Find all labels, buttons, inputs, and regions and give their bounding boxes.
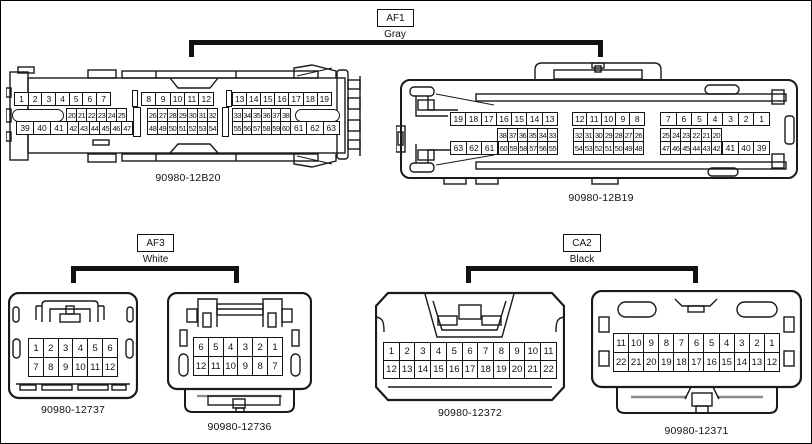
pin-6: 6 <box>462 342 479 361</box>
connector-code-af3: AF3 <box>137 234 174 252</box>
pin-63: 63 <box>450 141 467 155</box>
pin-21: 21 <box>628 352 644 372</box>
pin-row: 333435363738 <box>232 108 291 122</box>
pin-61: 61 <box>290 121 307 135</box>
pin-62: 62 <box>466 141 483 155</box>
pin-6: 6 <box>82 92 97 106</box>
pin-row: 1110987654321 <box>613 333 780 353</box>
pin-row: 252423222120 <box>660 128 722 142</box>
connector-code-af3-text: AF3 <box>146 238 164 249</box>
pin-3: 3 <box>237 337 253 357</box>
pin-11: 11 <box>87 357 103 377</box>
pin-19: 19 <box>493 360 510 379</box>
pin-1: 1 <box>753 112 770 126</box>
af1-bracket-tick-left <box>189 40 194 57</box>
connector-90980-12737: 123456 789101112 <box>8 292 138 400</box>
pin-row: 2221201918171615141312 <box>613 352 780 372</box>
pin-4: 4 <box>707 112 724 126</box>
pin-22: 22 <box>540 360 557 379</box>
pin-row: 616263 <box>290 121 340 135</box>
pin-row: 26272829303132 <box>147 108 218 122</box>
connector-90980-12736: 654321 121110987 <box>167 292 312 416</box>
pin-40: 40 <box>33 121 51 135</box>
pin-11: 11 <box>540 342 557 361</box>
pin-7: 7 <box>267 356 283 376</box>
part-number-90980-12737: 90980-12737 <box>8 404 138 416</box>
pin-row: 19181716151413 <box>450 112 558 126</box>
connector-90980-12371: 1110987654321 2221201918171615141312 <box>591 290 802 417</box>
pin-17: 17 <box>288 92 303 106</box>
pin-16: 16 <box>496 112 512 126</box>
pin-17: 17 <box>462 360 479 379</box>
pin-1: 1 <box>28 338 44 358</box>
pin-62: 62 <box>306 121 323 135</box>
pin-2: 2 <box>28 92 43 106</box>
pin-18: 18 <box>465 112 481 126</box>
bank-separator <box>133 107 141 137</box>
pin-32: 32 <box>207 108 218 122</box>
pin-row: 789101112 <box>28 357 118 377</box>
pin-row: 12111098 <box>572 112 645 126</box>
pin-63: 63 <box>323 121 340 135</box>
pin-4: 4 <box>719 333 735 353</box>
pin-row: 383736353433 <box>497 128 558 142</box>
pin-2: 2 <box>738 112 755 126</box>
pin-12: 12 <box>383 360 400 379</box>
pin-13: 13 <box>232 92 247 106</box>
pin-41: 41 <box>722 141 739 155</box>
pin-12: 12 <box>572 112 588 126</box>
pin-row: 394041 <box>16 121 68 135</box>
connector-code-ca2-text: CA2 <box>572 238 591 249</box>
connector-90980-12b20: 1234567 89101112 13141516171819 20212223… <box>6 64 370 168</box>
pin-5: 5 <box>446 342 463 361</box>
pin-10: 10 <box>601 112 617 126</box>
pin-6: 6 <box>688 333 704 353</box>
pin-13: 13 <box>542 112 558 126</box>
pin-33: 33 <box>547 128 558 142</box>
pin-5: 5 <box>691 112 708 126</box>
pin-20: 20 <box>509 360 526 379</box>
pin-row: 1234567 <box>14 92 111 106</box>
pin-12: 12 <box>764 352 780 372</box>
pin-6: 6 <box>676 112 693 126</box>
pin-39: 39 <box>753 141 770 155</box>
pin-7: 7 <box>28 357 44 377</box>
ca2-bracket-tick-right <box>693 266 698 283</box>
pin-17: 17 <box>481 112 497 126</box>
pin-12: 12 <box>102 357 118 377</box>
pin-row: 123456 <box>28 338 118 358</box>
pin-16: 16 <box>274 92 289 106</box>
connector-code-ca2: CA2 <box>563 234 601 252</box>
pin-19: 19 <box>658 352 674 372</box>
pin-12: 12 <box>198 92 214 106</box>
pin-7: 7 <box>673 333 689 353</box>
af1-bracket-bar <box>189 40 603 45</box>
pin-3: 3 <box>58 338 74 358</box>
pin-22: 22 <box>613 352 629 372</box>
pin-16: 16 <box>703 352 719 372</box>
pin-18: 18 <box>673 352 689 372</box>
af3-bracket-tick-right <box>234 266 239 283</box>
pin-5: 5 <box>703 333 719 353</box>
pin-47: 47 <box>121 121 133 135</box>
row-separator <box>132 90 138 107</box>
connector-color-af1: Gray <box>370 29 420 40</box>
pin-11: 11 <box>586 112 602 126</box>
part-number-90980-12372: 90980-12372 <box>375 407 565 419</box>
pin-row: 48495051525354 <box>147 121 218 135</box>
pin-5: 5 <box>69 92 84 106</box>
pin-15: 15 <box>719 352 735 372</box>
pin-row: 89101112 <box>141 92 214 106</box>
pin-10: 10 <box>628 333 644 353</box>
pin-4: 4 <box>72 338 88 358</box>
pin-2: 2 <box>252 337 268 357</box>
pin-1: 1 <box>267 337 283 357</box>
pin-1: 1 <box>764 333 780 353</box>
bank-separator <box>222 107 229 137</box>
pin-7: 7 <box>96 92 111 106</box>
part-number-90980-12b19: 90980-12B19 <box>396 192 806 204</box>
pin-8: 8 <box>252 356 268 376</box>
pin-9: 9 <box>155 92 171 106</box>
pin-row: 636261 <box>450 141 498 155</box>
pin-5: 5 <box>208 337 224 357</box>
pin-row: 202122232425 <box>66 108 127 122</box>
pin-row: 1213141516171819202122 <box>383 360 557 379</box>
pin-3: 3 <box>414 342 431 361</box>
pin-row: 54535251504948 <box>573 141 644 155</box>
pin-12: 12 <box>193 356 209 376</box>
pin-38: 38 <box>280 108 291 122</box>
pin-row: 654321 <box>193 337 283 357</box>
pin-7: 7 <box>477 342 494 361</box>
pin-11: 11 <box>184 92 200 106</box>
pin-row: 555657585960 <box>232 121 291 135</box>
connector-color-af3: White <box>132 254 179 265</box>
pin-14: 14 <box>414 360 431 379</box>
pin-5: 5 <box>87 338 103 358</box>
pin-10: 10 <box>524 342 541 361</box>
pin-16: 16 <box>446 360 463 379</box>
pin-11: 11 <box>208 356 224 376</box>
pin-row: 1234567891011 <box>383 342 557 361</box>
pin-row: 414039 <box>722 141 770 155</box>
pin-8: 8 <box>141 92 157 106</box>
connector-pinout-diagram: AF1 Gray <box>0 0 812 444</box>
af3-bracket-tick-left <box>71 266 76 283</box>
pin-15: 15 <box>511 112 527 126</box>
pin-25: 25 <box>116 108 127 122</box>
pin-row: 121110987 <box>193 356 283 376</box>
pin-6: 6 <box>193 337 209 357</box>
pin-19: 19 <box>450 112 466 126</box>
pin-8: 8 <box>43 357 59 377</box>
pin-17: 17 <box>688 352 704 372</box>
pin-1: 1 <box>14 92 29 106</box>
pin-9: 9 <box>509 342 526 361</box>
pin-row: 605958575655 <box>498 141 558 155</box>
pin-10: 10 <box>223 356 239 376</box>
pin-1: 1 <box>383 342 400 361</box>
connector-color-ca2: Black <box>558 254 606 265</box>
pin-19: 19 <box>317 92 332 106</box>
ca2-bracket-tick-left <box>466 266 471 283</box>
pin-54: 54 <box>207 121 218 135</box>
pin-2: 2 <box>399 342 416 361</box>
connector-code-af1: AF1 <box>377 9 414 27</box>
pin-4: 4 <box>55 92 70 106</box>
pin-2: 2 <box>749 333 765 353</box>
pin-26: 26 <box>633 128 644 142</box>
pin-11: 11 <box>613 333 629 353</box>
pin-14: 14 <box>526 112 542 126</box>
pin-3: 3 <box>734 333 750 353</box>
pin-18: 18 <box>477 360 494 379</box>
ca2-bracket-bar <box>466 266 698 271</box>
pin-4: 4 <box>430 342 447 361</box>
connector-code-af1-text: AF1 <box>386 13 404 24</box>
connector-90980-12b19: 19181716151413 12111098 7654321 38373635… <box>396 62 806 186</box>
part-number-90980-12736: 90980-12736 <box>167 421 312 433</box>
pin-9: 9 <box>643 333 659 353</box>
pin-61: 61 <box>481 141 498 155</box>
pin-3: 3 <box>722 112 739 126</box>
pin-41: 41 <box>50 121 68 135</box>
pin-8: 8 <box>493 342 510 361</box>
pin-21: 21 <box>524 360 541 379</box>
pin-9: 9 <box>58 357 74 377</box>
pin-2: 2 <box>43 338 59 358</box>
pin-10: 10 <box>72 357 88 377</box>
pin-3: 3 <box>41 92 56 106</box>
pin-row: 7654321 <box>660 112 770 126</box>
pin-18: 18 <box>303 92 318 106</box>
pin-15: 15 <box>260 92 275 106</box>
pin-42: 42 <box>711 141 722 155</box>
pin-9: 9 <box>615 112 631 126</box>
part-number-90980-12b20: 90980-12B20 <box>6 172 370 184</box>
pin-55: 55 <box>547 141 558 155</box>
connector-90980-12372: 1234567891011 1213141516171819202122 <box>375 290 565 403</box>
af3-bracket-bar <box>71 266 239 271</box>
pin-10: 10 <box>170 92 186 106</box>
pin-13: 13 <box>399 360 416 379</box>
af1-bracket-tick-right <box>598 40 603 57</box>
part-number-90980-12371: 90980-12371 <box>591 425 802 437</box>
pin-row: 424344454647 <box>67 121 133 135</box>
pin-48: 48 <box>633 141 644 155</box>
pin-20: 20 <box>643 352 659 372</box>
pin-7: 7 <box>660 112 677 126</box>
pin-20: 20 <box>711 128 722 142</box>
pin-8: 8 <box>629 112 645 126</box>
pin-14: 14 <box>246 92 261 106</box>
pin-40: 40 <box>738 141 755 155</box>
pin-15: 15 <box>430 360 447 379</box>
pin-row: 32313029282726 <box>573 128 644 142</box>
pin-9: 9 <box>237 356 253 376</box>
pin-14: 14 <box>734 352 750 372</box>
pin-8: 8 <box>658 333 674 353</box>
pin-13: 13 <box>749 352 765 372</box>
pin-6: 6 <box>102 338 118 358</box>
pin-4: 4 <box>223 337 239 357</box>
pin-39: 39 <box>16 121 34 135</box>
pin-row: 474645444342 <box>660 141 722 155</box>
pin-row: 13141516171819 <box>232 92 332 106</box>
